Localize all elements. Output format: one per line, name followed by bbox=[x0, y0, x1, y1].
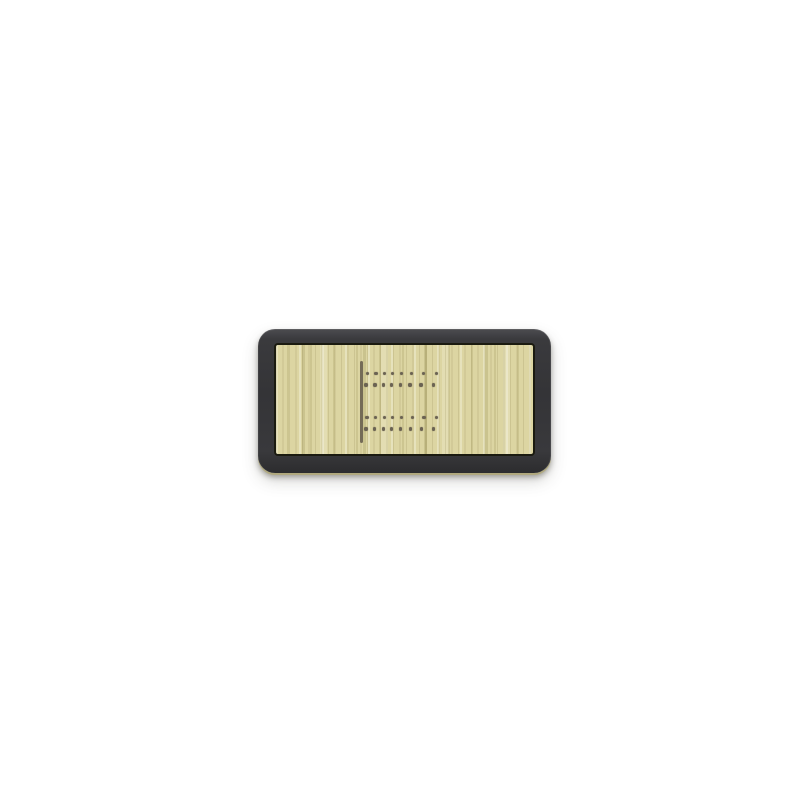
peg-hole bbox=[365, 416, 368, 419]
peg-hole bbox=[364, 383, 367, 386]
peg-hole bbox=[374, 372, 377, 375]
render-canvas bbox=[0, 0, 807, 807]
peg-hole bbox=[373, 383, 376, 386]
wood-face bbox=[274, 343, 535, 456]
peg-hole bbox=[422, 416, 425, 419]
peg-hole bbox=[409, 427, 412, 430]
peg-hole bbox=[399, 427, 402, 430]
peg-hole bbox=[432, 383, 435, 386]
peg-hole bbox=[382, 383, 385, 386]
peg-hole bbox=[420, 427, 423, 430]
peg-hole bbox=[364, 427, 367, 430]
start-line bbox=[360, 361, 364, 443]
peg-hole bbox=[408, 383, 411, 386]
peg-hole bbox=[382, 427, 385, 430]
peg-hole bbox=[399, 383, 402, 386]
peg-hole bbox=[419, 383, 422, 386]
